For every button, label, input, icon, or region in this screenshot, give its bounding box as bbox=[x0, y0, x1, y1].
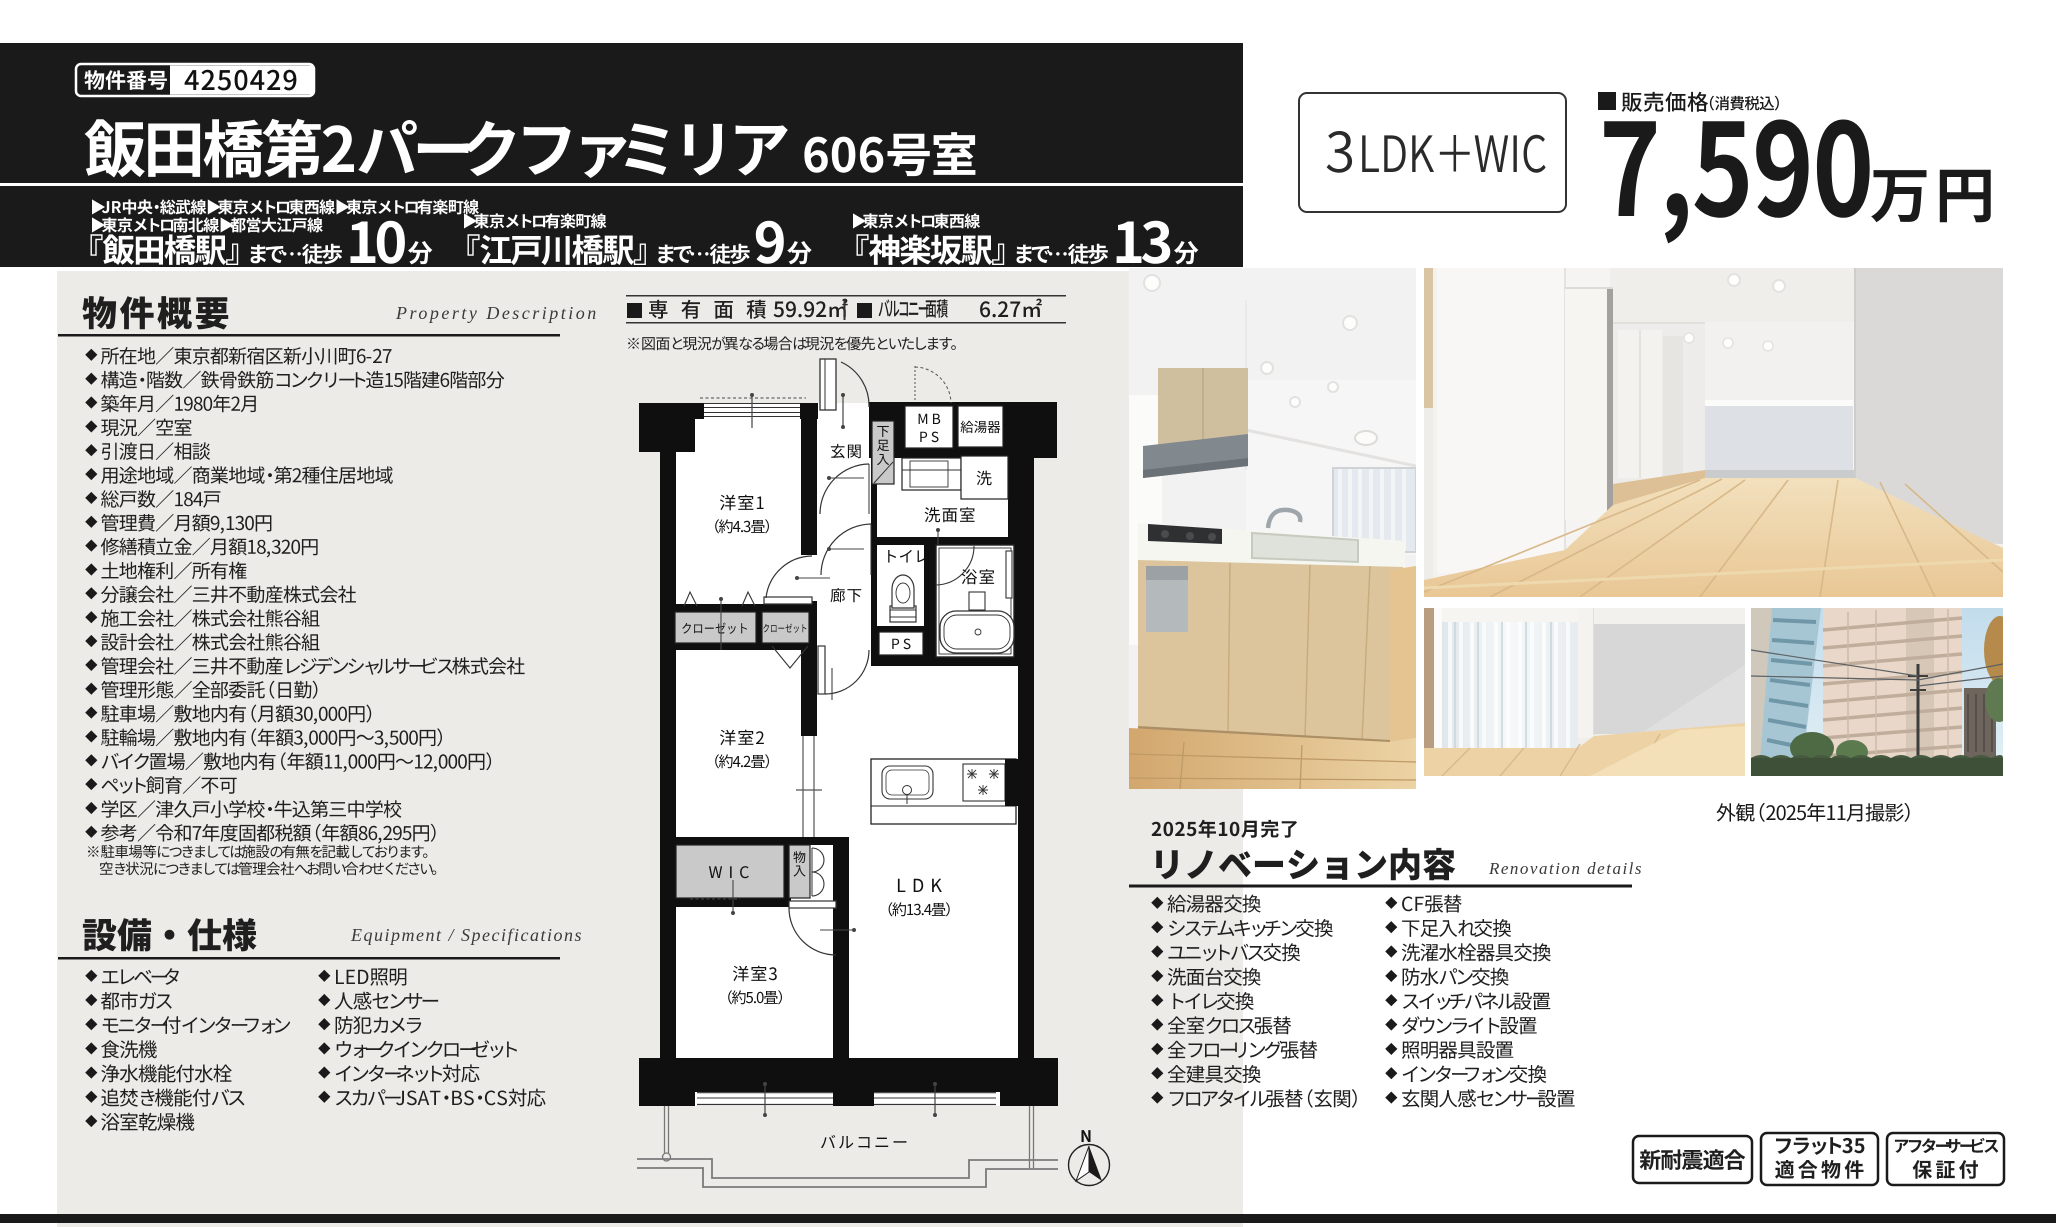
svg-text:Equipment / Specifications: Equipment / Specifications bbox=[350, 925, 583, 945]
svg-text:Property Description: Property Description bbox=[395, 303, 599, 323]
svg-text:Renovation details: Renovation details bbox=[1488, 859, 1643, 878]
